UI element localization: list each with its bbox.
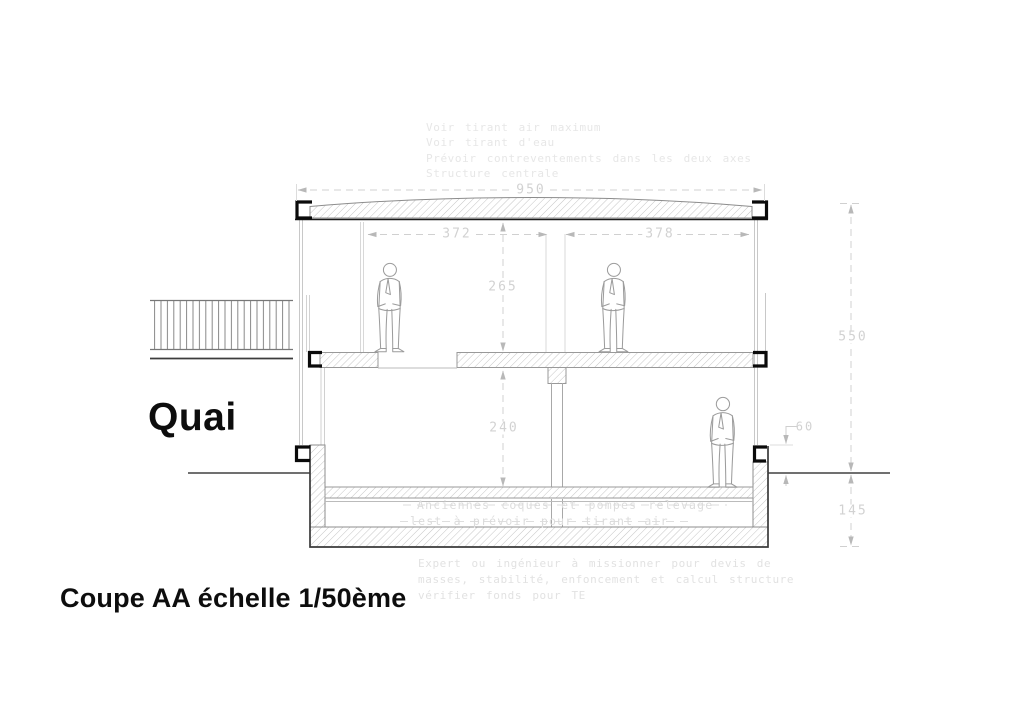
person-figure-lower bbox=[708, 397, 737, 487]
dim-freeboard: 60 bbox=[793, 421, 817, 434]
note-top-line-4: Structure centrale bbox=[426, 166, 752, 181]
roof-slab bbox=[310, 198, 752, 219]
dim-right-bay-width: 378 bbox=[642, 228, 677, 241]
dim-overall-height: 550 bbox=[835, 331, 870, 344]
gangway-post bbox=[307, 295, 310, 352]
corner-brackets bbox=[297, 202, 768, 461]
note-bottom-line-2: masses, stabilité, enfoncement et calcul… bbox=[418, 572, 794, 588]
dim-overall-width: 950 bbox=[513, 184, 548, 197]
note-top-block: Voir tirant air maximum Voir tirant d'ea… bbox=[426, 120, 752, 182]
note-bottom-line-1: Expert ou ingénieur à missionner pour de… bbox=[418, 556, 794, 572]
quai-label: Quai bbox=[148, 396, 237, 440]
person-figure-upper-left bbox=[375, 263, 404, 351]
drawing-page: Voir tirant air maximum Voir tirant d'ea… bbox=[0, 0, 1024, 717]
note-top-line-1: Voir tirant air maximum bbox=[426, 120, 752, 135]
dim-upper-deck-height: 265 bbox=[485, 281, 520, 294]
bilge-note-line-2: lest à prévoir pour tirant air bbox=[410, 514, 669, 529]
dim-draught: 145 bbox=[835, 505, 870, 518]
bilge-note-line-1: Anciennes coques et pompes relevage bbox=[417, 498, 713, 513]
quay-railing bbox=[150, 301, 293, 350]
note-bottom-block: Expert ou ingénieur à missionner pour de… bbox=[418, 556, 794, 604]
dim-lower-deck-height: 240 bbox=[486, 422, 521, 435]
note-bottom-line-3: vérifier fonds pour TE bbox=[418, 588, 794, 604]
note-top-line-2: Voir tirant d'eau bbox=[426, 135, 752, 150]
dimension-60 bbox=[770, 427, 797, 487]
person-figure-upper-right bbox=[599, 263, 628, 351]
upper-floor bbox=[320, 353, 753, 384]
note-top-line-3: Prévoir contreventements dans les deux a… bbox=[426, 151, 752, 166]
dim-left-bay-width: 372 bbox=[439, 228, 474, 241]
section-caption: Coupe AA échelle 1/50ème bbox=[60, 583, 406, 614]
